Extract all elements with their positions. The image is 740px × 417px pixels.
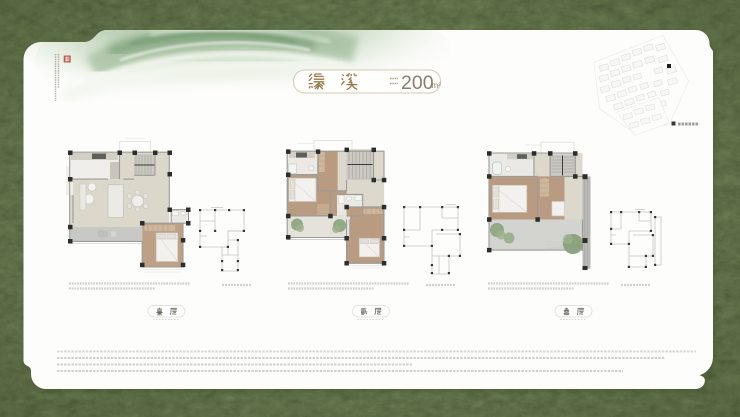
- svg-text:200: 200: [401, 72, 434, 94]
- svg-text:m²: m²: [432, 81, 442, 90]
